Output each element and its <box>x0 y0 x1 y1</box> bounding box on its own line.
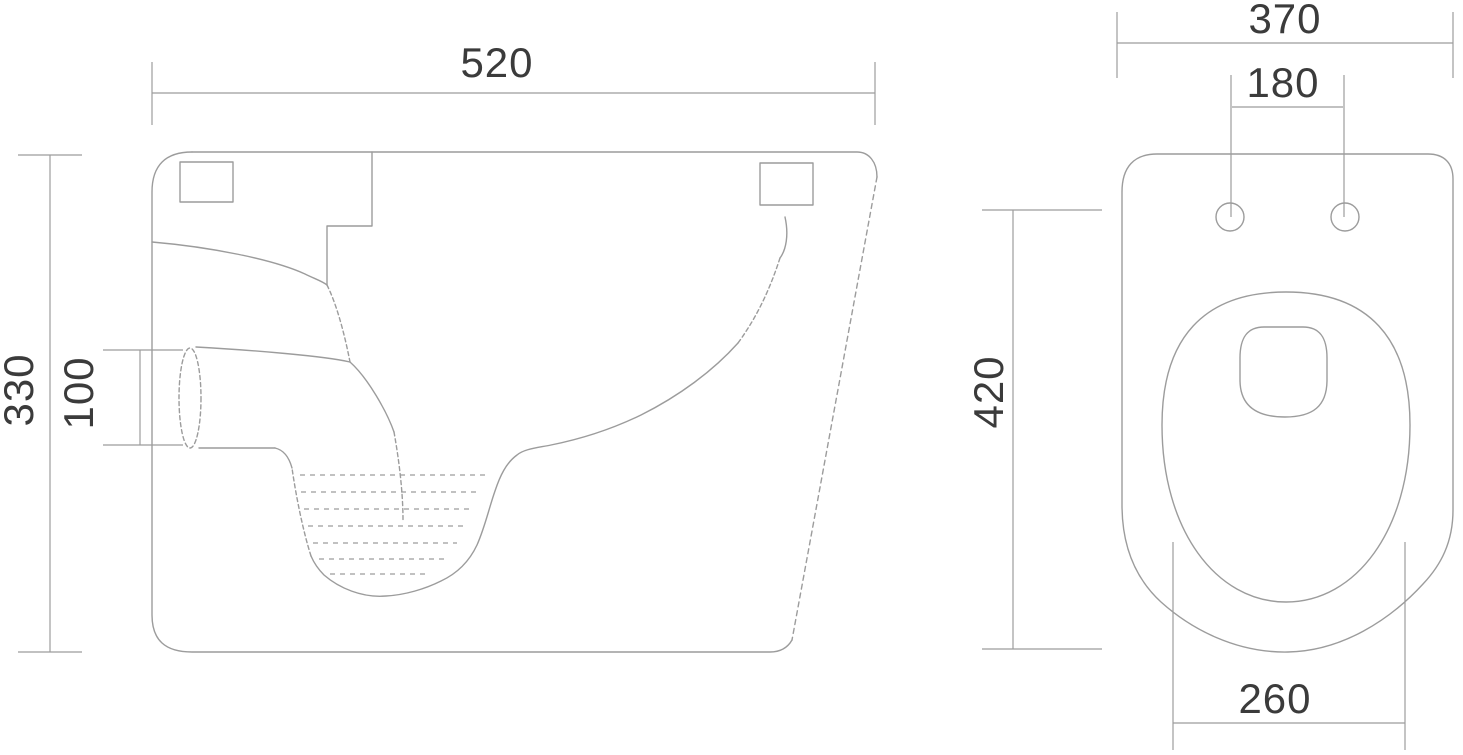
dimension-side-width: 520 <box>152 39 875 125</box>
side-outlet-pipe-top <box>196 347 350 362</box>
dimension-line-100 <box>103 350 183 445</box>
dimension-bowl-front-width: 260 <box>1173 542 1405 750</box>
dim-label-370: 370 <box>1248 0 1321 42</box>
side-bowl-curve-top <box>780 217 787 258</box>
dim-label-260: 260 <box>1238 675 1311 722</box>
side-body-left-bottom-edge <box>152 152 792 652</box>
side-bowl-curve-hidden <box>738 258 780 343</box>
side-right-fixing-box <box>760 163 813 205</box>
top-view: 370 180 420 260 <box>965 0 1453 750</box>
top-flush-outlet <box>1240 327 1327 417</box>
dimension-top-depth: 420 <box>965 210 1102 649</box>
dim-label-180: 180 <box>1246 59 1319 106</box>
side-outlet-pipe-opening <box>179 348 201 448</box>
side-bowl-curve-main <box>311 343 738 596</box>
technical-drawing: 520 330 100 370 180 <box>0 0 1463 755</box>
side-water-level-lines <box>300 475 487 574</box>
dim-label-330: 330 <box>0 353 42 426</box>
top-left-fixing-hole <box>1216 203 1244 231</box>
side-body-top-edge <box>192 152 877 177</box>
top-body-outline <box>1122 154 1453 652</box>
top-bowl-rim <box>1162 292 1410 602</box>
side-flush-channel-step <box>327 152 372 285</box>
dimension-fixing-holes-spacing: 180 <box>1231 59 1344 217</box>
side-inlet-channel-curve <box>152 242 327 285</box>
side-body-rear-slant-hidden-edge <box>792 177 877 640</box>
dimension-outlet-diameter: 100 <box>55 350 183 445</box>
side-sump-left-wall-hidden <box>292 468 311 556</box>
toilet-dimensions-drawing: 520 330 100 370 180 <box>0 0 1463 755</box>
dim-label-520: 520 <box>460 39 533 86</box>
side-trap-curve-hidden <box>394 432 403 520</box>
dim-label-420: 420 <box>965 355 1012 428</box>
side-left-fixing-box <box>180 162 233 202</box>
side-sump-left-corner <box>275 448 292 468</box>
side-trap-curve <box>350 362 394 432</box>
side-view-body-outline <box>152 152 877 652</box>
side-inlet-channel-hidden <box>327 285 350 362</box>
side-bowl-sump-outline <box>275 217 787 596</box>
side-view: 520 330 100 <box>0 39 877 652</box>
dim-label-100: 100 <box>55 356 102 429</box>
top-right-fixing-hole <box>1331 203 1359 231</box>
